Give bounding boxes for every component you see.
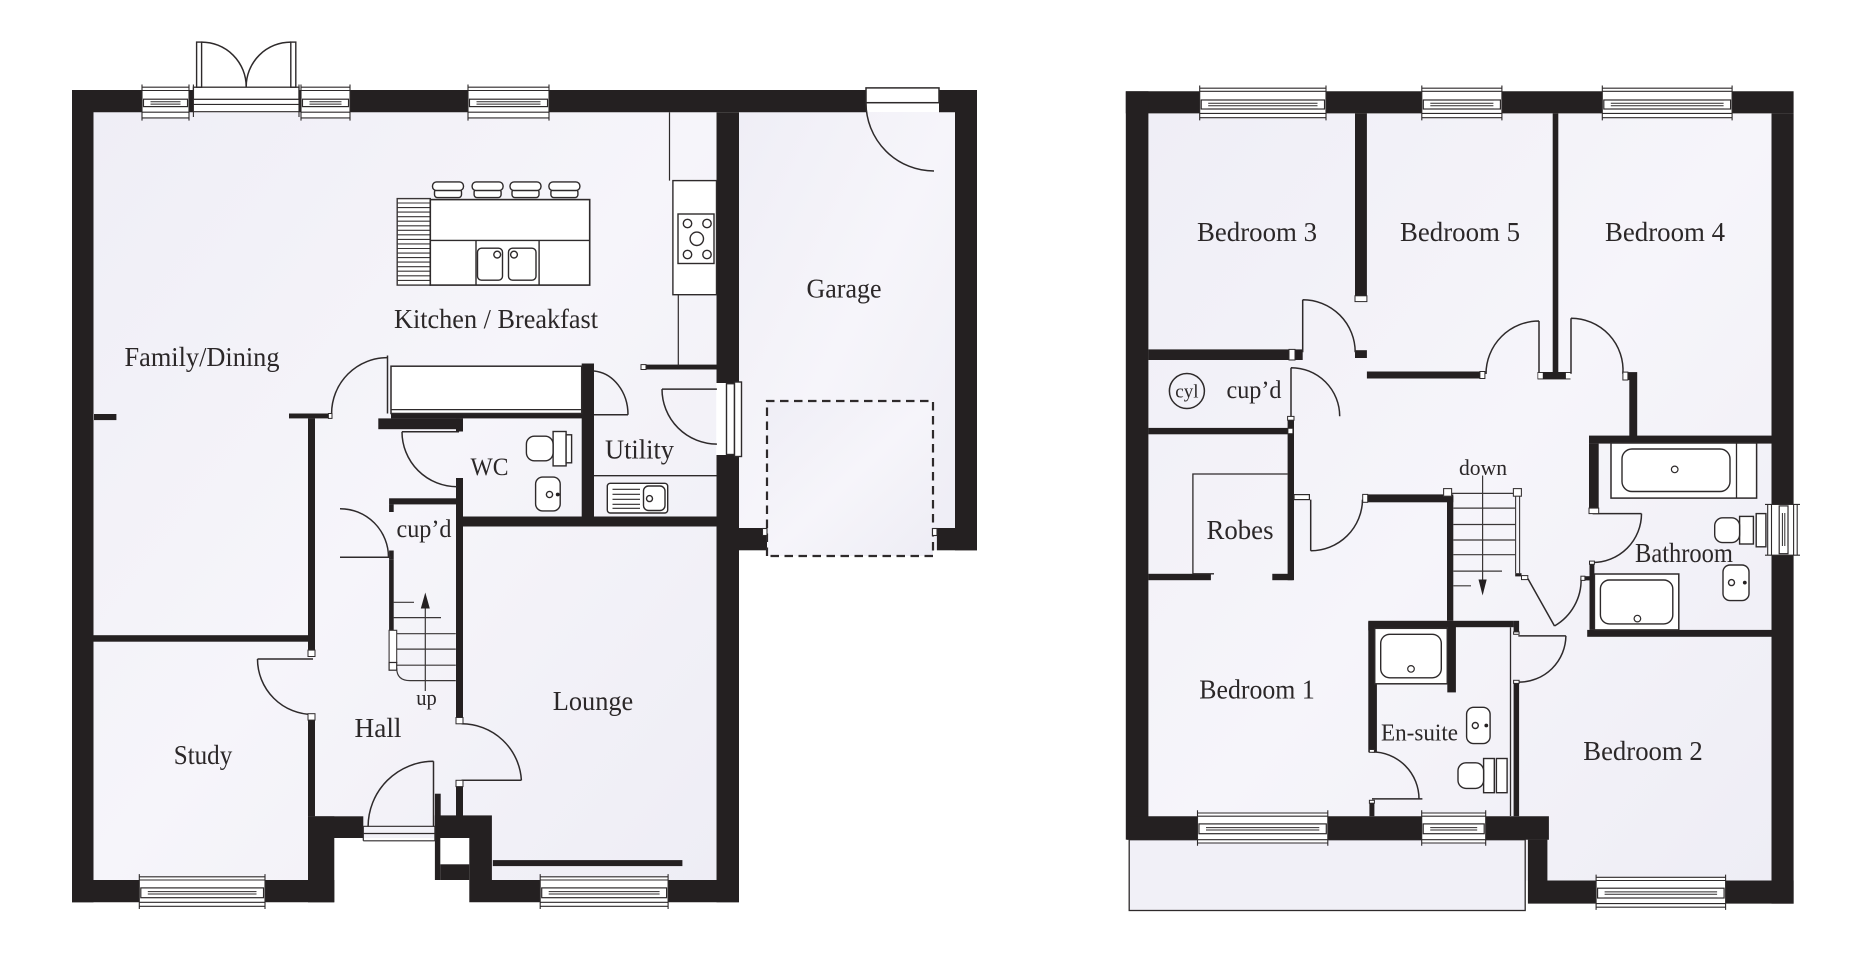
svg-text:Study: Study (174, 739, 233, 770)
svg-text:Bedroom 5: Bedroom 5 (1400, 216, 1520, 247)
svg-text:Family/Dining: Family/Dining (125, 341, 280, 372)
svg-text:Garage: Garage (807, 273, 882, 304)
svg-text:Kitchen / Breakfast: Kitchen / Breakfast (394, 303, 598, 334)
svg-text:cyl: cyl (1175, 382, 1198, 403)
svg-text:Robes: Robes (1207, 514, 1274, 545)
svg-text:En-suite: En-suite (1381, 720, 1458, 747)
svg-text:Bedroom 3: Bedroom 3 (1197, 216, 1317, 247)
svg-text:WC: WC (471, 452, 509, 481)
svg-text:Utility: Utility (605, 434, 674, 465)
svg-text:up: up (416, 685, 437, 710)
svg-text:Bathroom: Bathroom (1635, 537, 1733, 568)
svg-text:cup’d: cup’d (1227, 375, 1282, 404)
svg-text:Hall: Hall (355, 712, 402, 743)
svg-text:Bedroom 4: Bedroom 4 (1605, 216, 1725, 247)
svg-text:Bedroom 2: Bedroom 2 (1583, 735, 1703, 766)
svg-text:cup’d: cup’d (397, 514, 452, 543)
svg-text:down: down (1459, 455, 1507, 480)
svg-text:Lounge: Lounge (553, 685, 634, 716)
svg-text:Bedroom 1: Bedroom 1 (1199, 674, 1315, 705)
